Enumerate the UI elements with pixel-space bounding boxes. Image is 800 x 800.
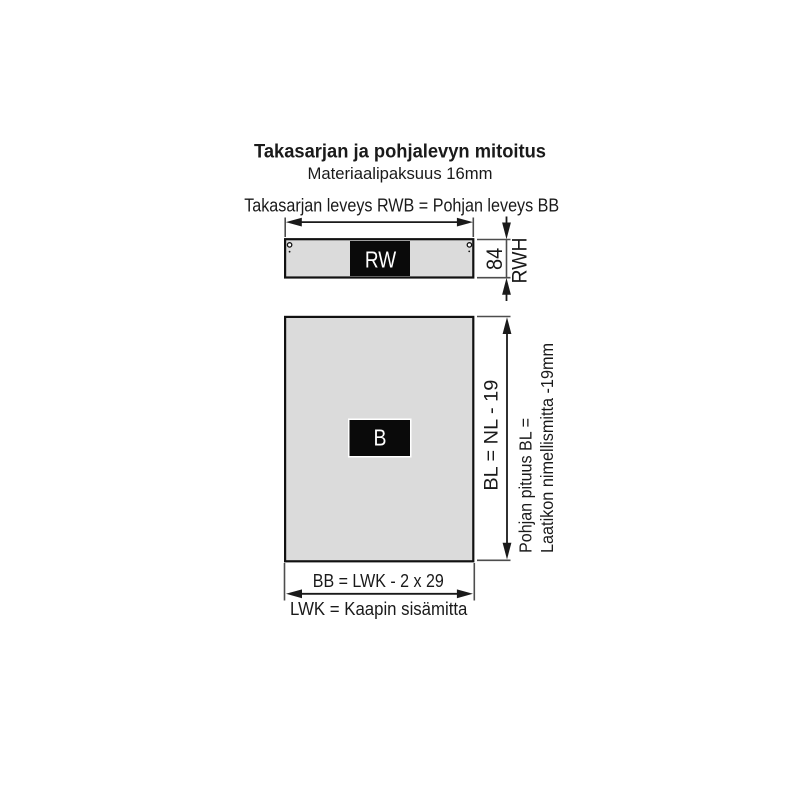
svg-text:Takasarjan ja pohjalevyn mitoi: Takasarjan ja pohjalevyn mitoitus xyxy=(254,142,546,163)
svg-text:LWK = Kaapin sisämitta: LWK = Kaapin sisämitta xyxy=(290,598,468,619)
svg-text:Materiaalipaksuus 16mm: Materiaalipaksuus 16mm xyxy=(308,164,493,183)
svg-text:84: 84 xyxy=(482,248,507,270)
svg-text:BL = NL - 19: BL = NL - 19 xyxy=(482,380,503,491)
svg-text:B: B xyxy=(374,425,387,451)
svg-text:BB = LWK - 2 x 29: BB = LWK - 2 x 29 xyxy=(313,570,444,591)
svg-text:Pohjan pituus BL =: Pohjan pituus BL = xyxy=(516,418,536,553)
svg-text:RWH: RWH xyxy=(508,238,532,284)
svg-text:Laatikon nimellismitta -19mm: Laatikon nimellismitta -19mm xyxy=(537,343,557,553)
svg-text:Takasarjan leveys RWB = Pohjan: Takasarjan leveys RWB = Pohjan leveys BB xyxy=(244,194,559,215)
svg-text:RW: RW xyxy=(365,247,397,273)
